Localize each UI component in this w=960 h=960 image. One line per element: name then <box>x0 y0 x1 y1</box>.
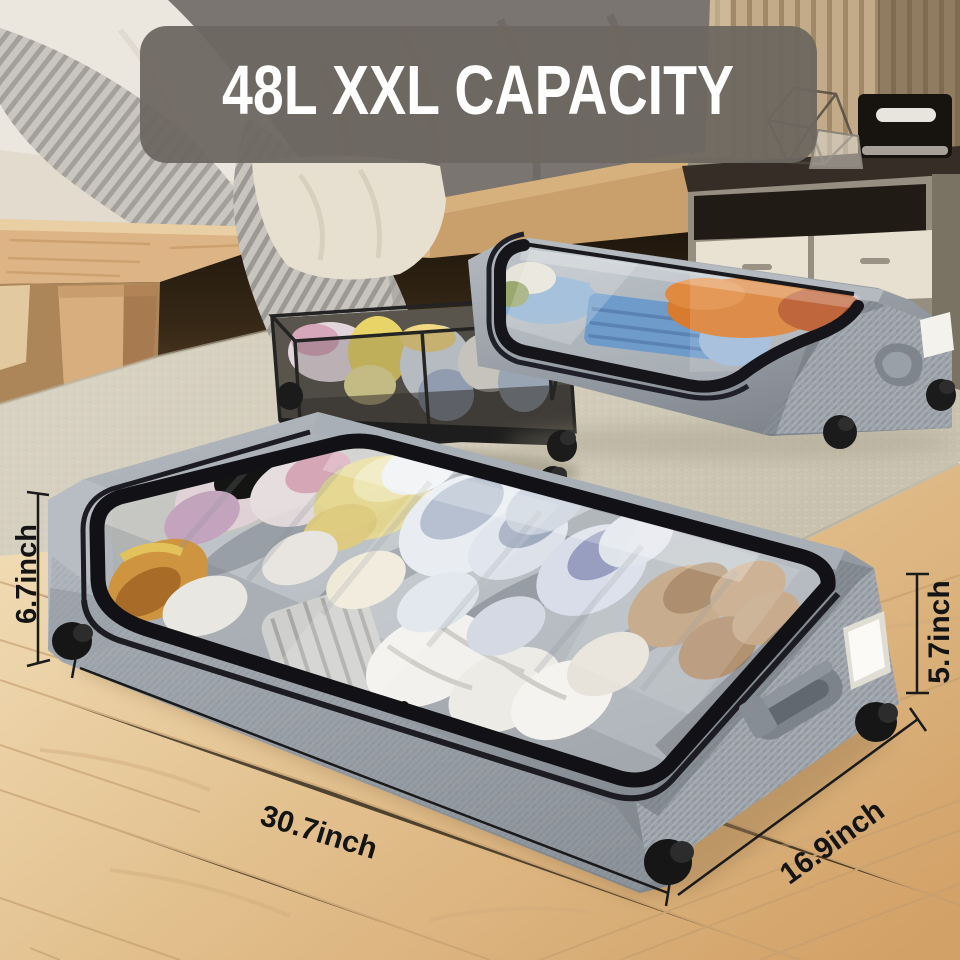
svg-text:48L XXL CAPACITY: 48L XXL CAPACITY <box>222 51 734 129</box>
svg-text:6.7inch: 6.7inch <box>11 524 43 624</box>
svg-text:5.7inch: 5.7inch <box>923 580 956 683</box>
